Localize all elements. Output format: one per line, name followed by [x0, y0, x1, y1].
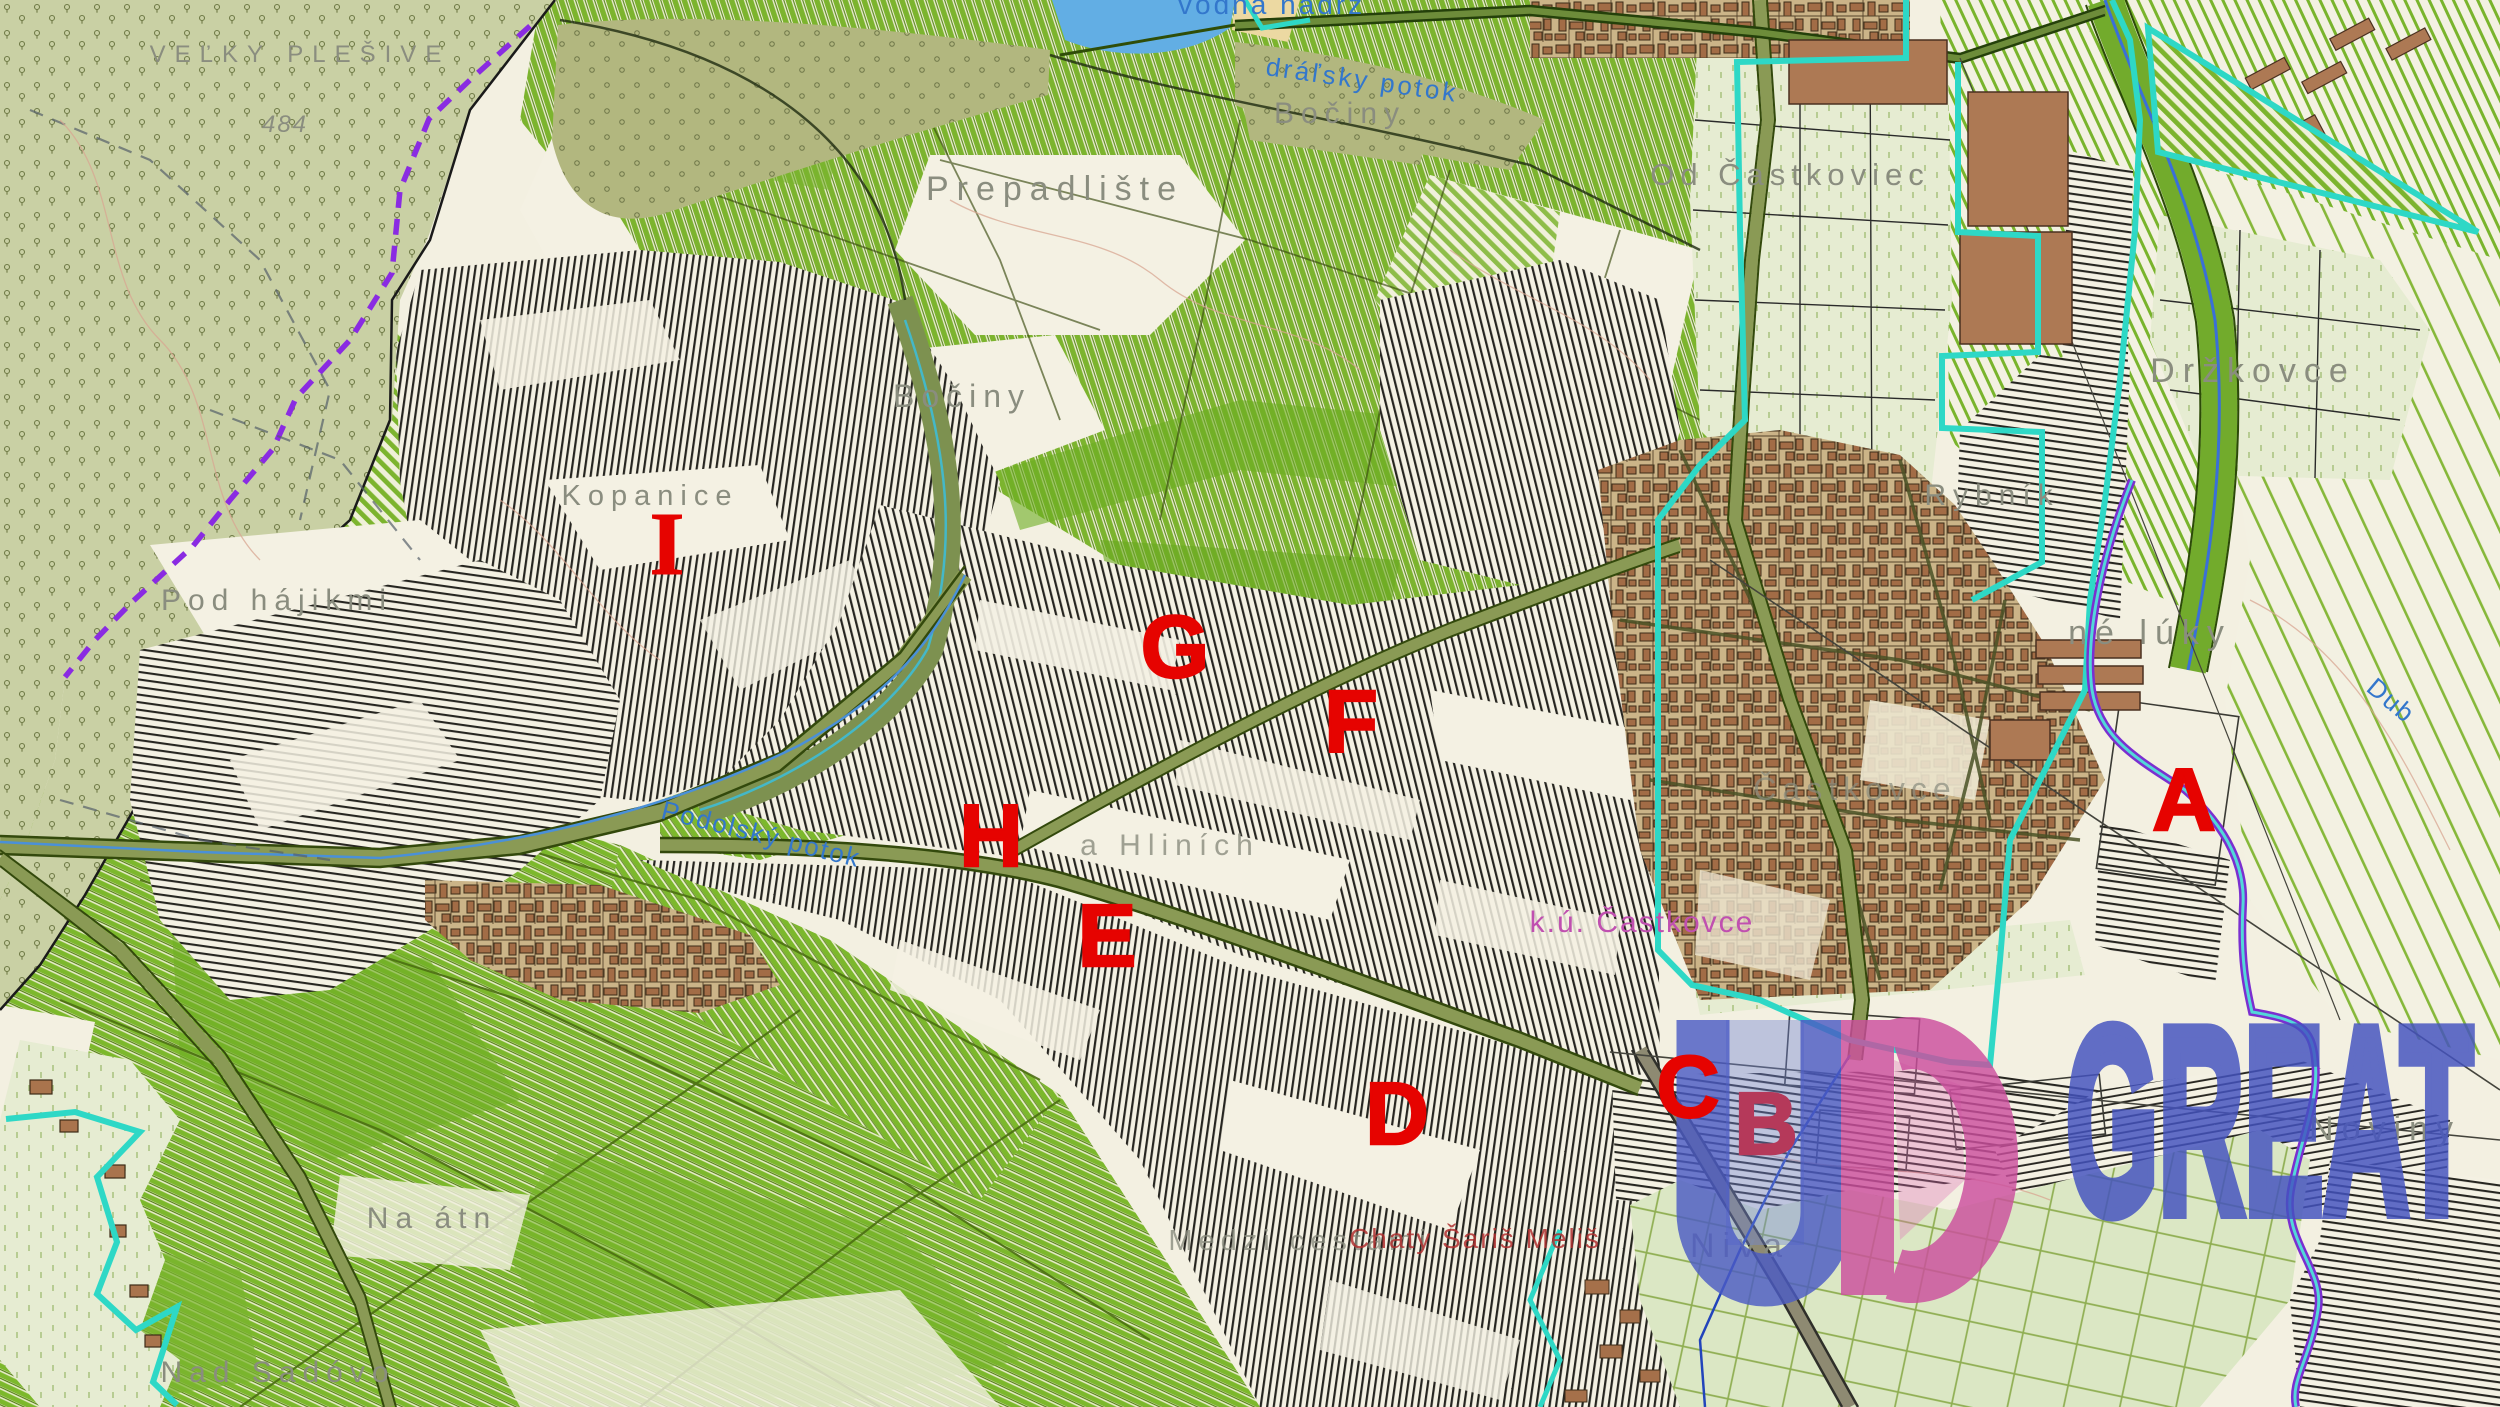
svg-text:H: H [959, 786, 1023, 885]
svg-text:k.ú. Častkovce: k.ú. Častkovce [1530, 905, 1755, 939]
svg-text:a Hliních: a Hliních [1080, 829, 1260, 862]
svg-text:Od Častkoviec: Od Častkoviec [1650, 157, 1930, 192]
svg-text:Chaty Šariš Meliš: Chaty Šariš Meliš [1349, 1223, 1601, 1254]
svg-text:484: 484 [262, 111, 308, 138]
svg-text:F: F [1324, 672, 1378, 771]
svg-text:Nad Sadóvo: Nad Sadóvo [160, 1356, 395, 1389]
svg-text:Bočiny: Bočiny [1274, 97, 1406, 130]
svg-text:Prepadlište: Prepadlište [926, 170, 1184, 208]
svg-text:I: I [649, 495, 684, 594]
svg-text:GREAT: GREAT [2066, 975, 2473, 1269]
svg-text:né lúky: né lúky [2068, 614, 2232, 652]
svg-text:D: D [1365, 1064, 1429, 1163]
svg-text:Držkovce: Držkovce [2150, 352, 2356, 390]
svg-text:VEĽKY PLEŠIVE: VEĽKY PLEŠIVE [150, 40, 451, 68]
svg-text:G: G [1141, 597, 1209, 696]
svg-text:C: C [1656, 1037, 1720, 1136]
svg-text:Častkovce: Častkovce [1753, 771, 1956, 807]
svg-text:Na átn: Na átn [367, 1202, 497, 1235]
svg-text:Pod hájikmi: Pod hájikmi [161, 584, 393, 617]
svg-text:vodná nádrž: vodná nádrž [1178, 0, 1365, 20]
svg-text:A: A [2152, 750, 2216, 849]
svg-text:E: E [1078, 886, 1137, 985]
svg-text:Bočiny: Bočiny [893, 378, 1031, 414]
svg-text:Rybník: Rybník [1924, 479, 2059, 512]
